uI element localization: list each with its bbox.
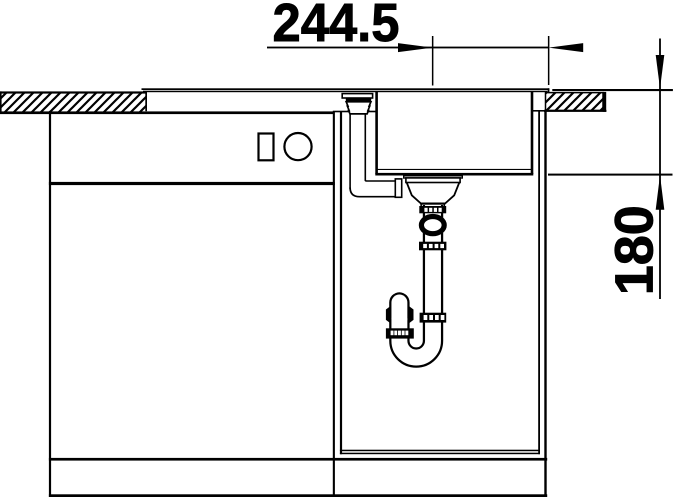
svg-text:180: 180	[604, 205, 664, 295]
svg-text:244.5: 244.5	[273, 0, 400, 53]
